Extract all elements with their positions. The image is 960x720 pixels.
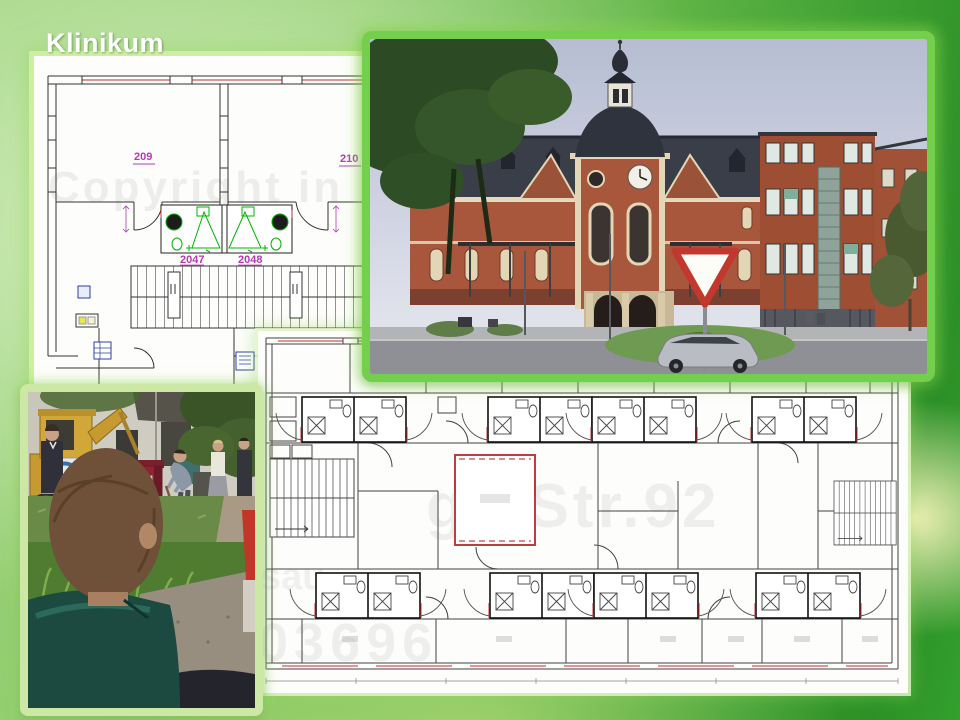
parked-car	[658, 334, 758, 373]
room-label-209: 209	[134, 151, 152, 163]
stair-right	[834, 481, 896, 545]
bath-label-1: 2047	[180, 254, 204, 266]
room-label-210: 210	[340, 153, 358, 165]
bath-label-2: 2048	[238, 254, 262, 266]
rosette	[588, 171, 604, 187]
presentation-slide: Copyright in	[0, 0, 960, 720]
watermark-zip: 03696	[258, 613, 438, 673]
building-photo-art	[370, 39, 927, 374]
bathroom-highlight-block: 2047 2048	[161, 205, 292, 266]
lower-floor-plan-drawing: ge Str.92 sau 03696	[258, 331, 908, 693]
red-room	[455, 455, 535, 545]
groundbreaking-photo	[20, 384, 263, 716]
lower-floor-plan: ge Str.92 sau 03696	[258, 331, 908, 693]
stair-left	[270, 459, 354, 537]
groundbreaking-photo-art	[28, 392, 255, 708]
slide-title: Klinikum	[46, 28, 164, 59]
building-photo	[362, 31, 935, 382]
